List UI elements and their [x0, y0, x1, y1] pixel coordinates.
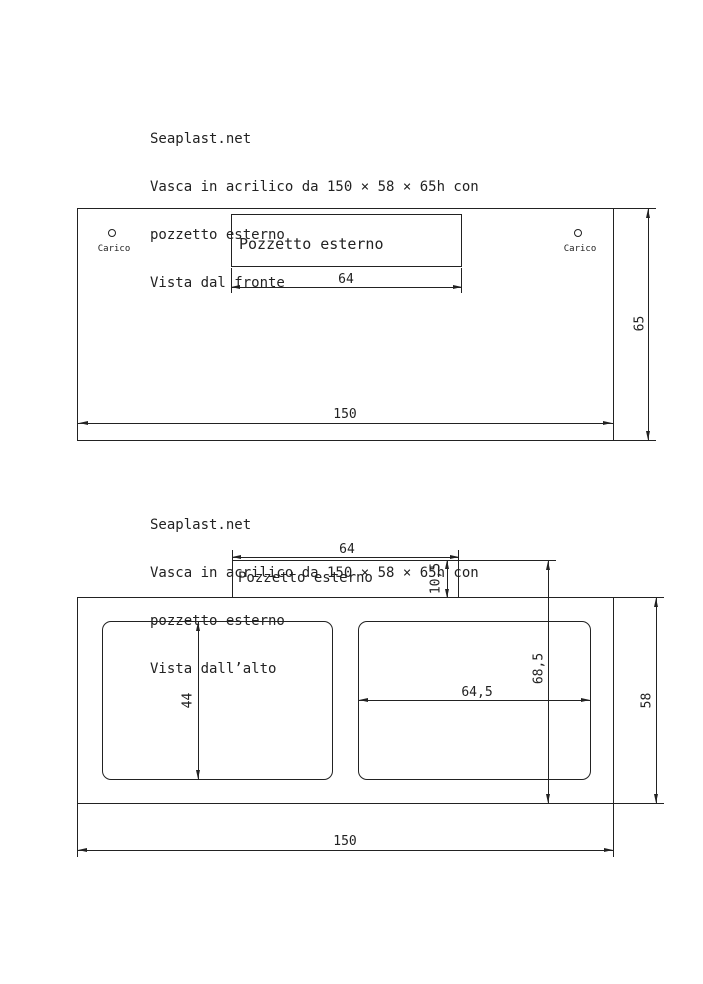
front-dim-65-line [648, 208, 649, 441]
front-dim-65-arrow-top [646, 209, 650, 218]
front-dim-64-ext-right [461, 268, 462, 293]
top-dim-44-line [198, 621, 199, 780]
top-dim-64-arrow-right [450, 555, 459, 559]
top-dim-150-line [77, 850, 614, 851]
top-dim-64-arrow-left [232, 555, 241, 559]
top-view-brand: Seaplast.net [150, 517, 479, 533]
top-dim-645-arrow-left [359, 698, 368, 702]
front-dim-64-arrow-right [453, 285, 462, 289]
top-dim-44-label: 44 [182, 685, 195, 717]
front-dim-65-arrow-bottom [646, 431, 650, 440]
top-dim-105-arrow-top [445, 560, 449, 569]
front-dim-150-arrow-left [79, 421, 88, 425]
front-view-brand: Seaplast.net [150, 131, 479, 147]
top-dim-58-label: 58 [641, 685, 654, 717]
carico-right-hole [574, 229, 582, 237]
top-dim-150-label: 150 [325, 835, 365, 848]
front-dim-150-arrow-right [603, 421, 612, 425]
front-view-description-line1: Vasca in acrilico da 150 × 58 × 65h con [150, 179, 479, 195]
front-dim-64-arrow-left [231, 285, 240, 289]
top-dim-645-label: 64,5 [447, 686, 507, 699]
front-dim-64-ext-left [231, 268, 232, 293]
top-dim-44-arrow-top [196, 622, 200, 631]
top-dim-64-label: 64 [327, 543, 367, 556]
top-dim-150-arrow-right [604, 848, 613, 852]
front-dim-65-label: 65 [634, 304, 647, 344]
top-dim-58-line [656, 597, 657, 804]
carico-left-label: Carico [92, 245, 136, 254]
top-dim-645-line [358, 700, 591, 701]
top-dim-58-arrow-top [654, 598, 658, 607]
top-dim-685-ext-top [459, 560, 556, 561]
top-dim-685-arrow-top [546, 561, 550, 570]
drawing-page: Seaplast.net Vasca in acrilico da 150 × … [0, 0, 703, 984]
top-dim-44-arrow-bottom [196, 770, 200, 779]
top-dim-150-arrow-left [78, 848, 87, 852]
top-dim-64-line [232, 557, 459, 558]
front-dim-64-line [231, 287, 462, 288]
carico-right-label: Carico [558, 245, 602, 254]
carico-left-hole [108, 229, 116, 237]
top-view-left-opening [102, 621, 333, 780]
top-view-pozzetto-label: Pozzetto esterno [238, 571, 373, 585]
front-dim-64-label: 64 [326, 273, 366, 286]
front-dim-65-ext-bottom [613, 440, 656, 441]
front-dim-150-line [78, 423, 613, 424]
front-dim-150-label: 150 [325, 408, 365, 421]
top-dim-645-arrow-right [581, 698, 590, 702]
top-dim-58-arrow-bottom [654, 794, 658, 803]
top-dim-105-label: 10,5 [430, 560, 443, 598]
front-view-pozzetto-label: Pozzetto esterno [239, 237, 384, 252]
